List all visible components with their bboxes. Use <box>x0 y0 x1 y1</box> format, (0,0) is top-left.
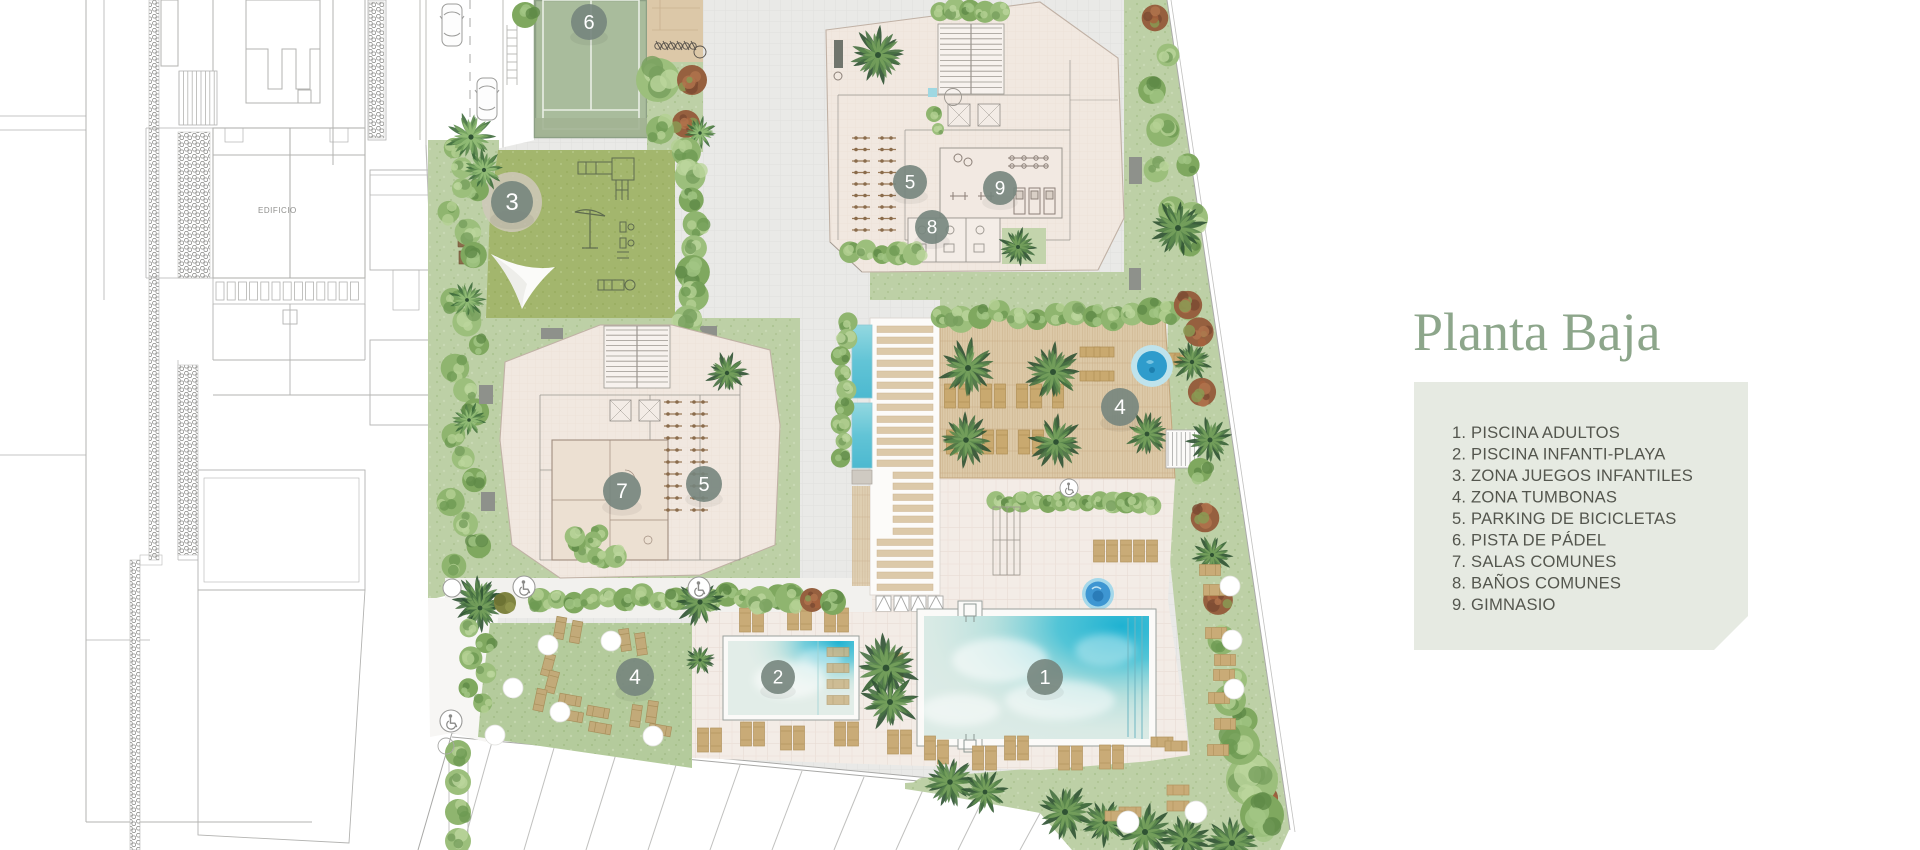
svg-text:5. PARKING DE BICICLETAS: 5. PARKING DE BICICLETAS <box>1452 509 1677 528</box>
svg-text:5: 5 <box>905 172 916 193</box>
svg-text:8. BAÑOS COMUNES: 8. BAÑOS COMUNES <box>1452 573 1621 593</box>
svg-text:3. ZONA JUEGOS INFANTILES: 3. ZONA JUEGOS INFANTILES <box>1452 466 1693 485</box>
svg-text:6: 6 <box>583 12 594 34</box>
svg-text:7. SALAS COMUNES: 7. SALAS COMUNES <box>1452 552 1617 571</box>
svg-text:4: 4 <box>1114 396 1126 419</box>
svg-text:3: 3 <box>505 189 518 216</box>
svg-text:1: 1 <box>1039 667 1050 689</box>
svg-text:4. ZONA TUMBONAS: 4. ZONA TUMBONAS <box>1452 488 1617 507</box>
svg-text:1. PISCINA ADULTOS: 1. PISCINA ADULTOS <box>1452 423 1620 442</box>
svg-text:2. PISCINA INFANTI-PLAYA: 2. PISCINA INFANTI-PLAYA <box>1452 445 1666 464</box>
svg-text:2: 2 <box>773 667 784 688</box>
svg-text:9: 9 <box>995 178 1006 199</box>
svg-text:8: 8 <box>927 217 938 238</box>
svg-text:6. PISTA DE PÁDEL: 6. PISTA DE PÁDEL <box>1452 531 1606 550</box>
svg-text:4: 4 <box>629 666 641 689</box>
svg-text:EDIFICIO: EDIFICIO <box>258 206 297 215</box>
svg-text:Planta Baja: Planta Baja <box>1413 302 1660 362</box>
svg-text:5: 5 <box>698 474 709 496</box>
svg-text:7: 7 <box>616 480 628 503</box>
svg-text:9. GIMNASIO: 9. GIMNASIO <box>1452 595 1556 614</box>
